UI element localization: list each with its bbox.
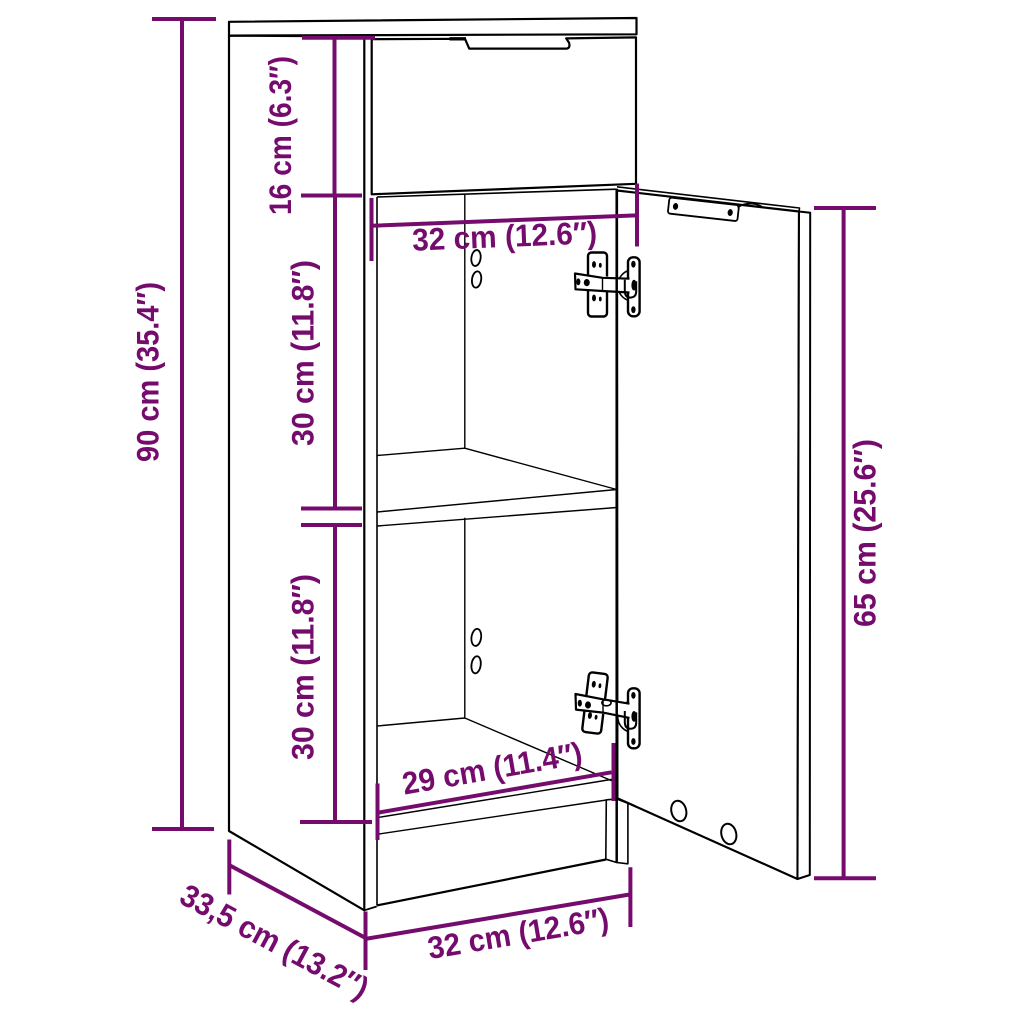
- svg-text:65 cm (25.6″): 65 cm (25.6″): [847, 439, 883, 627]
- svg-text:90 cm (35.4″): 90 cm (35.4″): [129, 282, 165, 462]
- svg-text:30 cm (11.8″): 30 cm (11.8″): [285, 574, 321, 760]
- svg-text:32 cm (12.6″): 32 cm (12.6″): [411, 214, 597, 257]
- svg-text:16 cm (6.3″): 16 cm (6.3″): [262, 56, 298, 215]
- svg-text:30 cm (11.8″): 30 cm (11.8″): [285, 260, 321, 446]
- svg-text:32 cm (12.6″): 32 cm (12.6″): [425, 900, 611, 966]
